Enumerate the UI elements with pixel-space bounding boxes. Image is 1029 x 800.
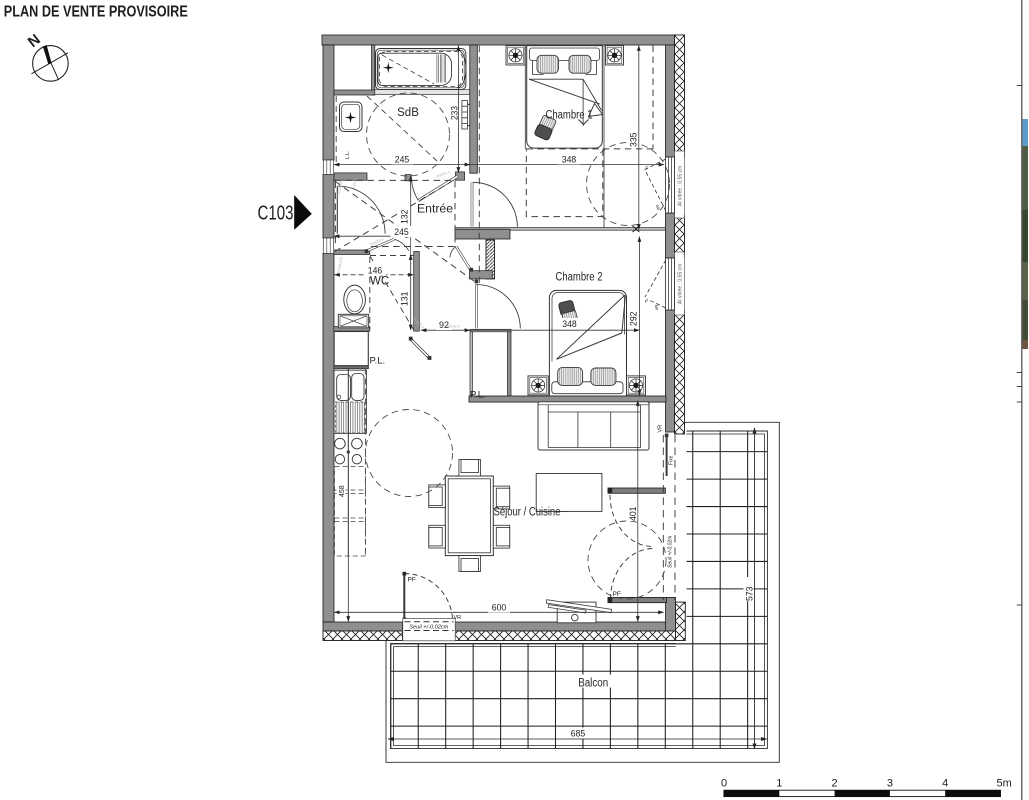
svg-text:233: 233 [449, 106, 460, 120]
svg-text:131: 131 [399, 292, 410, 307]
svg-text:VR: VR [658, 425, 664, 433]
svg-text:PF: PF [613, 591, 621, 598]
svg-text:L.L.: L.L. [345, 151, 351, 159]
svg-text:F: F [645, 299, 648, 304]
svg-text:#0038 d: #0038 d [446, 325, 460, 329]
svg-text:245: 245 [394, 227, 409, 238]
svg-text:AI vitrée : 0,55 cm: AI vitrée : 0,55 cm [677, 264, 683, 304]
svg-text:685: 685 [571, 729, 586, 740]
svg-text:vR: vR [656, 204, 661, 210]
svg-text:P.L.: P.L. [370, 356, 386, 367]
svg-text:401: 401 [628, 507, 639, 522]
svg-text:Chambre 2: Chambre 2 [556, 272, 603, 284]
svg-text:P.L.: P.L. [470, 390, 486, 401]
svg-text:600: 600 [492, 603, 507, 614]
svg-text:Seuil +/-0,02m: Seuil +/-0,02m [667, 536, 673, 568]
svg-text:1: 1 [776, 778, 782, 790]
svg-text:Seuil +/-0,02cm: Seuil +/-0,02cm [409, 625, 448, 631]
svg-text:245: 245 [395, 155, 410, 166]
svg-text:2: 2 [832, 778, 838, 790]
svg-text:PF: PF [408, 577, 416, 584]
svg-text:AI vitrée : 0,55 cm: AI vitrée : 0,55 cm [677, 166, 683, 206]
svg-text:F: F [646, 166, 649, 171]
svg-text:5m: 5m [997, 778, 1012, 790]
svg-text:vR: vR [654, 304, 659, 310]
svg-text:348: 348 [562, 155, 577, 166]
svg-text:3: 3 [887, 778, 893, 790]
svg-text:4: 4 [942, 778, 948, 790]
svg-text:Balcon: Balcon [578, 678, 608, 690]
svg-text:Séjour / Cuisine: Séjour / Cuisine [494, 507, 561, 519]
svg-text:SdB: SdB [397, 107, 419, 119]
svg-text:573: 573 [744, 587, 755, 602]
svg-text:Entrée: Entrée [417, 204, 453, 216]
svg-text:Chambre 1: Chambre 1 [546, 110, 593, 122]
svg-text:335: 335 [628, 133, 639, 148]
svg-text:0: 0 [721, 778, 727, 790]
svg-text:PLAN DE VENTE PROVISOIRE: PLAN DE VENTE PROVISOIRE [4, 3, 188, 20]
svg-text:132: 132 [399, 210, 410, 225]
svg-text:C103: C103 [258, 203, 294, 225]
svg-text:VR: VR [454, 615, 462, 621]
svg-text:WC: WC [370, 276, 389, 288]
svg-text:292: 292 [628, 312, 639, 327]
svg-text:Fixe: Fixe [669, 455, 675, 465]
svg-text:458: 458 [339, 485, 346, 497]
svg-text:348: 348 [562, 319, 577, 330]
